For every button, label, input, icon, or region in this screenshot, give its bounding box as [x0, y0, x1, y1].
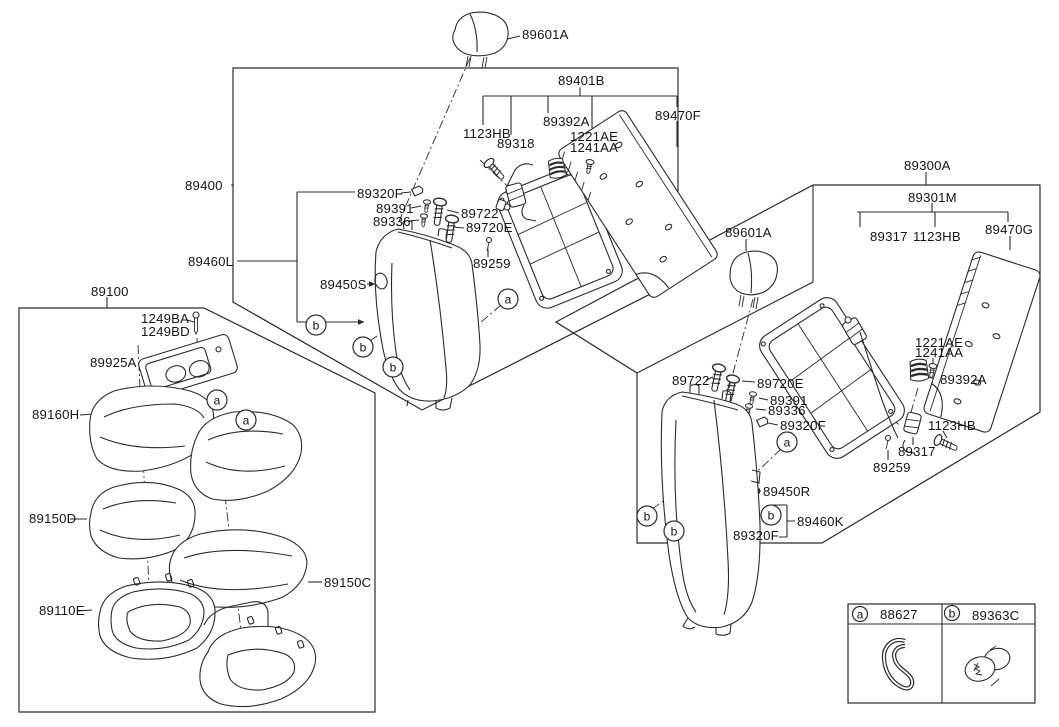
label-89392a-right: 89392A: [940, 372, 987, 387]
label-89336-left: 89336: [373, 214, 411, 229]
label-1249bd: 1249BD: [141, 324, 190, 339]
legend-key-b: b: [949, 606, 956, 620]
label-89450r: 89450R: [763, 484, 810, 499]
left-backrest-cover-drawing: [373, 221, 480, 411]
label-89450s: 89450S: [320, 277, 367, 292]
label-89150c: 89150C: [324, 575, 372, 590]
svg-text:a: a: [214, 394, 221, 408]
label-89259-right: 89259: [873, 460, 911, 475]
fastener-89363c-drawing: [962, 645, 1012, 686]
label-89722-left: 89722: [461, 206, 499, 221]
callout-b-right-1: b: [637, 506, 657, 526]
label-89392a-left: 89392A: [543, 114, 590, 129]
label-89160h: 89160H: [32, 407, 79, 422]
label-89460k: 89460K: [797, 514, 844, 529]
label-89722-right: 89722: [672, 373, 710, 388]
label-89470f: 89470F: [655, 108, 701, 123]
label-89300a: 89300A: [904, 158, 951, 173]
svg-text:b: b: [360, 341, 367, 355]
label-89720e-left: 89720E: [466, 220, 513, 235]
label-89400: 89400: [185, 178, 223, 193]
label-1123hb-upper: 1123HB: [913, 229, 961, 244]
legend-key-a: a: [857, 607, 864, 621]
label-89301m: 89301M: [908, 190, 957, 205]
svg-text:a: a: [243, 414, 250, 428]
label-89460l: 89460L: [188, 254, 233, 269]
callout-b-left-3: b: [383, 357, 403, 377]
svg-text:b: b: [768, 509, 775, 523]
callout-b-right-2: b: [664, 521, 684, 541]
right-backrest-cover-drawing: [661, 385, 760, 636]
label-89317-lower: 89317: [898, 444, 936, 459]
label-89150d: 89150D: [29, 511, 76, 526]
label-89100: 89100: [91, 284, 129, 299]
svg-text:b: b: [313, 319, 320, 333]
label-89925a: 89925A: [90, 355, 137, 370]
callout-b-left-1: b: [306, 315, 326, 335]
svg-text:b: b: [390, 361, 397, 375]
callout-a-left-backrest: a: [498, 289, 518, 309]
callout-b-right-3: b: [761, 505, 781, 525]
callout-b-left-2: b: [353, 337, 373, 357]
label-89320f-right-up: 89320F: [780, 418, 826, 433]
diagram-canvas: a 88627 b 89363C a b b b a a a b b b 896…: [0, 0, 1059, 727]
headrest-right-drawing: [730, 251, 777, 309]
label-89110e: 89110E: [39, 603, 85, 618]
label-89720e-right: 89720E: [757, 376, 804, 391]
label-89336-right: 89336: [768, 403, 806, 418]
label-89317-upper: 89317: [870, 229, 908, 244]
svg-text:b: b: [644, 510, 651, 524]
label-89401b: 89401B: [558, 73, 605, 88]
legend-part-89363c: 89363C: [972, 608, 1020, 623]
label-89320f-right-lo: 89320F: [733, 528, 779, 543]
label-headrest-left: 89601A: [522, 27, 569, 42]
svg-text:a: a: [784, 436, 791, 450]
callout-a-cushion-1: a: [207, 390, 227, 410]
label-1241aa-left: 1241AA: [570, 140, 618, 155]
svg-text:b: b: [671, 525, 678, 539]
label-1123hb-lower: 1123HB: [928, 418, 976, 433]
label-headrest-right: 89601A: [725, 225, 772, 240]
label-89318: 89318: [497, 136, 535, 151]
callout-a-right-backrest: a: [777, 432, 797, 452]
callout-a-cushion-2: a: [236, 410, 256, 430]
legend-table: a 88627 b 89363C: [848, 604, 1035, 703]
seat-cushion-parts: [90, 312, 316, 707]
label-89259-left: 89259: [473, 256, 511, 271]
label-89320f-left: 89320F: [357, 186, 403, 201]
label-89470g: 89470G: [985, 222, 1033, 237]
rear-seat-parts-diagram: a 88627 b 89363C a b b b a a a b b b 896…: [0, 0, 1059, 727]
headrest-left-drawing: [453, 12, 508, 68]
hook-88627-drawing: [884, 640, 912, 688]
svg-text:a: a: [505, 293, 512, 307]
label-1241aa-right: 1241AA: [915, 345, 963, 360]
legend-part-88627: 88627: [880, 607, 918, 622]
